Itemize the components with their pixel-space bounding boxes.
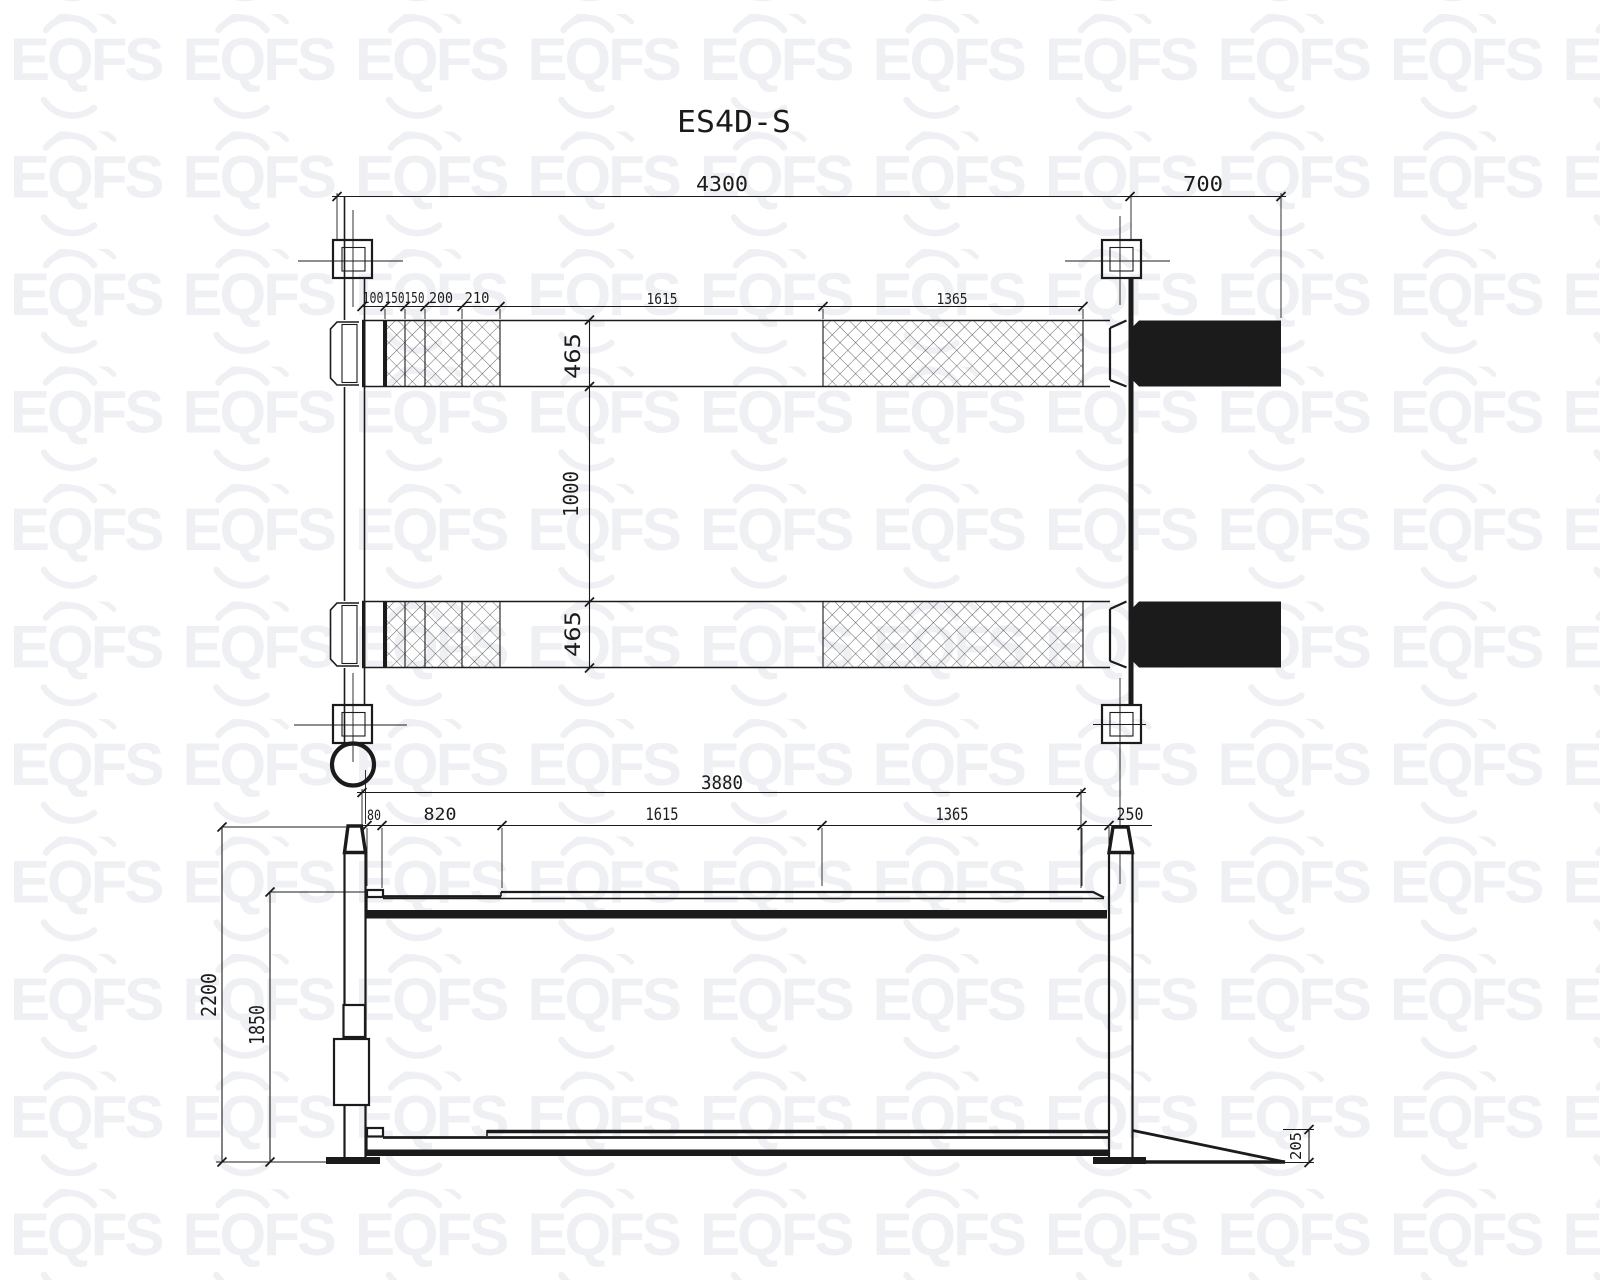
drawing-title: ES4D-S bbox=[677, 105, 791, 140]
plan-seg-1615-label: 1615 bbox=[647, 290, 678, 308]
runway-stop-bar bbox=[362, 321, 366, 387]
tread-plate-hatch bbox=[823, 321, 1083, 387]
column-base-plate bbox=[1093, 1157, 1146, 1164]
side-lowered-height-label: 205 bbox=[1287, 1132, 1305, 1160]
drive-on-ramp-rear bbox=[1134, 602, 1282, 668]
plan-seg-150b-label: 150 bbox=[405, 289, 425, 307]
plan-runway-width-front-label: 465 bbox=[561, 333, 585, 379]
runway-stop-bar bbox=[362, 602, 366, 668]
side-seg-1615-label: 1615 bbox=[646, 805, 679, 825]
watermark-layer bbox=[0, 0, 1600, 1280]
platform-rail bbox=[366, 1150, 1108, 1157]
column-cap bbox=[1109, 827, 1133, 853]
tread-plate-hatch bbox=[387, 321, 501, 387]
plan-seg-150a-label: 150 bbox=[385, 289, 405, 307]
wheel-stop-tab bbox=[367, 1128, 383, 1137]
runway-end-cap bbox=[331, 603, 360, 666]
plan-seg-200-label: 200 bbox=[429, 289, 453, 307]
power-unit-box bbox=[334, 1039, 369, 1105]
wheel-stop-tab bbox=[367, 890, 383, 897]
side-seg-80-label: 80 bbox=[367, 808, 381, 824]
plan-seg-210-label: 210 bbox=[465, 289, 490, 307]
side-seg-1365-label: 1365 bbox=[936, 805, 969, 825]
plan-track-gap-label: 1000 bbox=[559, 471, 583, 517]
platform-rail bbox=[366, 910, 1107, 919]
plan-seg-100-label: 100 bbox=[363, 289, 384, 307]
plan-ramp-length-label: 700 bbox=[1183, 172, 1223, 196]
plan-seg-1365-label: 1365 bbox=[937, 290, 968, 308]
runway-end-cap bbox=[331, 322, 360, 385]
hydraulic-cylinder-box bbox=[344, 1005, 366, 1037]
tread-plate-hatch bbox=[823, 602, 1083, 668]
column-cap bbox=[345, 826, 366, 853]
drawing-canvas: EQFS ES4D-S 4300 700 bbox=[0, 0, 1600, 1280]
side-raised-height-label: 1850 bbox=[245, 1005, 269, 1045]
side-seg-820-label: 820 bbox=[424, 805, 457, 825]
column-base-plate bbox=[326, 1157, 380, 1164]
plan-runway-width-rear-label: 465 bbox=[561, 611, 585, 657]
tread-plate-hatch bbox=[387, 602, 501, 668]
drive-on-ramp-front bbox=[1134, 321, 1282, 387]
side-platform-length-label: 3880 bbox=[701, 772, 743, 794]
side-seg-250-label: 250 bbox=[1117, 805, 1144, 825]
side-overall-height-label: 2200 bbox=[197, 973, 221, 1017]
plan-overall-length-label: 4300 bbox=[696, 172, 748, 196]
